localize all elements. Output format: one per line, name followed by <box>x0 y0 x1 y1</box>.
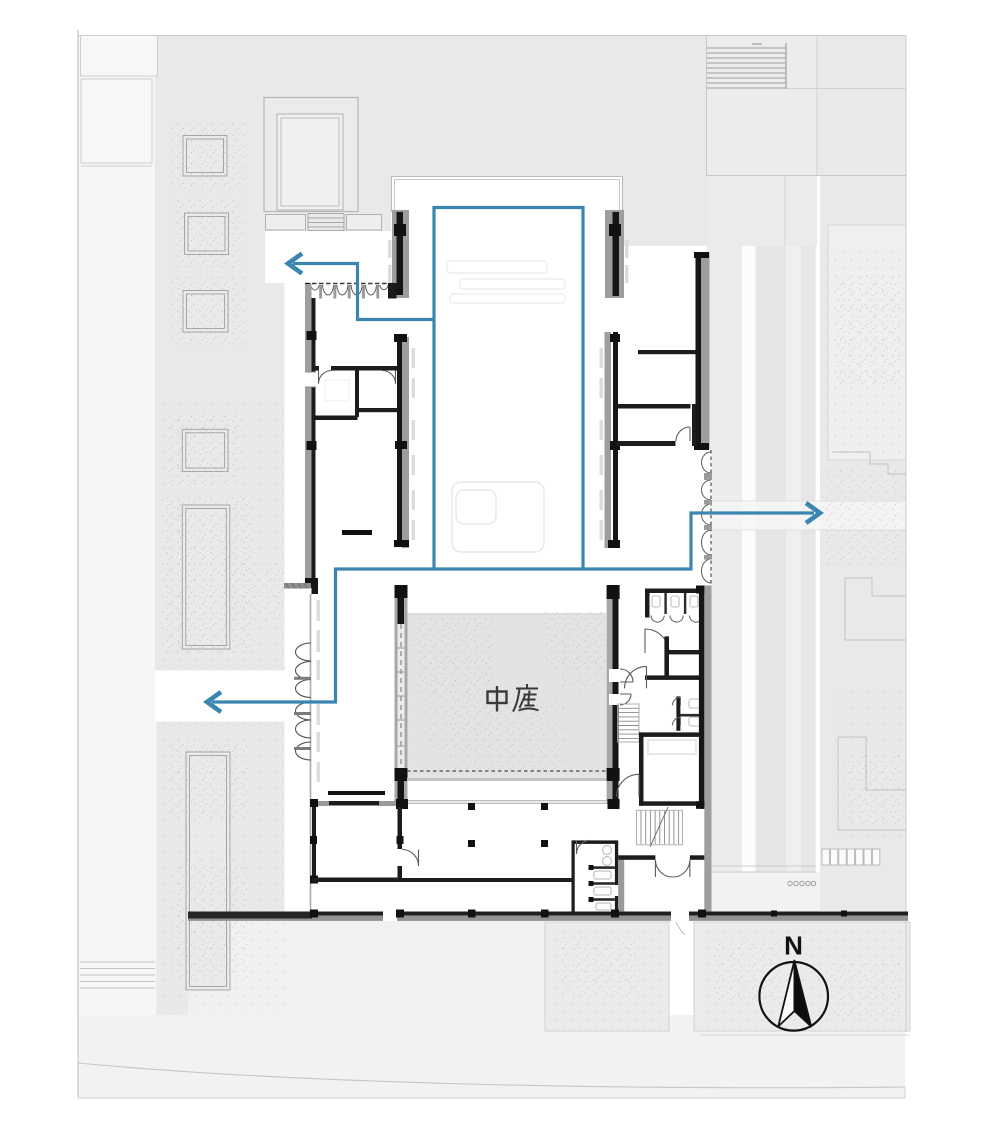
svg-text:N: N <box>784 931 803 961</box>
